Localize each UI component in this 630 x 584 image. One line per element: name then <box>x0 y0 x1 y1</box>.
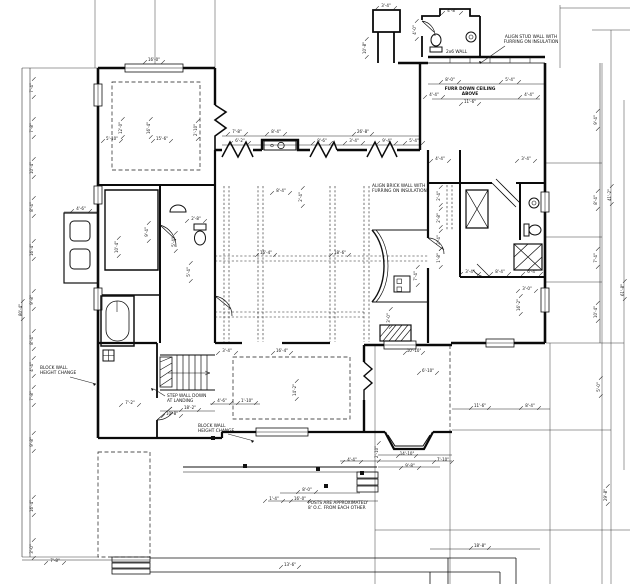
dim-tick <box>174 249 178 253</box>
dimension-label: 4'-8" <box>447 8 457 13</box>
dimension-label: 2'-10" <box>193 124 198 136</box>
dimension-label: 7'-2" <box>125 400 135 405</box>
dimension-label: 10'-4" <box>29 162 34 174</box>
dim-tick <box>596 207 600 211</box>
dimension-label: 11'-6" <box>464 99 476 104</box>
dimension-label: 9'-8" <box>405 463 415 468</box>
dim-tick <box>596 319 600 323</box>
dimension-label: 1'-8" <box>436 253 441 263</box>
dim-tick <box>311 141 315 145</box>
dim-tick <box>270 191 274 195</box>
round-sink-icon <box>529 198 539 208</box>
dim-tick <box>403 141 407 145</box>
dim-tick <box>447 159 451 163</box>
dim-tick <box>457 80 461 84</box>
dimension-label: 9'-4" <box>144 227 149 237</box>
dim-tick <box>459 102 463 106</box>
dim-tick <box>439 185 443 189</box>
cabinet-icon <box>64 213 98 283</box>
toilet-icon <box>524 224 541 236</box>
slab-dashed <box>98 452 150 557</box>
deck-and-walks <box>112 467 516 584</box>
tray-ceiling-dashed <box>112 82 200 170</box>
dim-tick <box>295 397 299 401</box>
dimension-label: 9'-4" <box>382 138 392 143</box>
dimension-label: 2'-4" <box>436 191 441 201</box>
dim-tick <box>283 132 287 136</box>
dim-tick <box>32 135 36 139</box>
dimension-label: 80'-4" <box>18 304 23 316</box>
dimension-label: 18'-6" <box>334 250 346 255</box>
dimension-label: 4'-4" <box>435 156 445 161</box>
dim-tick <box>596 109 600 113</box>
dim-tick <box>279 565 283 569</box>
dim-tick <box>179 414 183 418</box>
dim-tick <box>189 279 193 283</box>
dim-tick <box>226 132 230 136</box>
dim-tick <box>623 279 627 283</box>
dimension-label: 41'-2" <box>607 189 612 201</box>
dim-tick <box>32 77 36 81</box>
align-brick-wall-note: FURRING ON INSULATION <box>372 188 427 194</box>
walls <box>98 9 545 449</box>
dimension-label: 3'-0" <box>29 544 34 554</box>
dimension-label: 5'-4" <box>409 138 419 143</box>
dim-tick <box>32 385 36 389</box>
dim-tick <box>263 499 267 503</box>
dim-tick <box>121 117 125 121</box>
dim-tick <box>21 299 25 303</box>
dimension-label: 4'-6" <box>76 206 86 211</box>
dimension-label: 3'-0" <box>386 313 391 323</box>
dimension-label: 18'-8" <box>474 543 486 548</box>
dim-tick <box>32 196 36 200</box>
dimension-label: 5'-4" <box>505 77 515 82</box>
dim-tick <box>489 272 493 276</box>
block-wall-height-note-1-leader <box>70 377 96 384</box>
dimension-label: 5'-4" <box>186 267 191 277</box>
dim-tick <box>244 132 248 136</box>
pedestal-sink-icon <box>170 205 186 212</box>
dim-tick <box>533 159 537 163</box>
dim-tick <box>596 189 600 193</box>
dim-tick <box>196 137 200 141</box>
dim-tick <box>62 561 66 565</box>
floor-plan-sheet: 7'-4"7'-8"10'-4"8'-4"16'-4"9'-8"8'-4"4'-… <box>0 0 630 584</box>
align-stud-wall-note-leader <box>482 46 505 62</box>
dim-tick <box>32 403 36 407</box>
dimension-label: 1'-4" <box>269 496 279 501</box>
dim-tick <box>536 95 540 99</box>
post-markers <box>211 436 364 488</box>
dimension-label: 5'-4" <box>171 237 176 247</box>
dim-tick <box>415 37 419 41</box>
dimension-label: 61'-8" <box>620 284 625 296</box>
dimension-labels: 7'-4"7'-8"10'-4"8'-4"16'-4"9'-8"8'-4"4'-… <box>18 3 627 569</box>
dim-tick <box>439 225 443 229</box>
dim-tick <box>234 351 238 355</box>
dimension-label: 4'-4" <box>29 362 34 372</box>
dimension-label: 16'-4" <box>29 244 34 256</box>
dim-tick <box>441 11 445 15</box>
dim-tick <box>32 175 36 179</box>
extension-lines <box>22 0 630 584</box>
dim-tick <box>119 403 123 407</box>
dimension-label: 8'-0" <box>445 77 455 82</box>
dim-tick <box>415 19 419 23</box>
dimension-label: 2'-4" <box>298 192 303 202</box>
dimension-label: 3'-4" <box>349 138 359 143</box>
dimension-label: 11'-6" <box>474 403 486 408</box>
align-stud-wall-note-arrowhead <box>479 61 482 64</box>
dimension-label: 3'-4" <box>222 348 232 353</box>
dim-tick <box>101 139 105 143</box>
dim-tick <box>519 312 523 316</box>
post-marker <box>360 471 364 475</box>
dimension-label: 26'-8" <box>357 129 369 134</box>
post-marker <box>211 436 215 440</box>
dim-tick <box>416 265 420 269</box>
dimension-label: 7'-10" <box>437 457 449 462</box>
dim-tick <box>32 239 36 243</box>
windows <box>94 57 549 436</box>
dim-tick <box>417 371 421 375</box>
dimension-label: 2'-4" <box>436 235 441 245</box>
dim-tick <box>596 247 600 251</box>
dimension-label: 6'-2" <box>235 138 245 143</box>
dim-tick <box>507 272 511 276</box>
dimension-label: 16'-0" <box>148 57 160 62</box>
dim-tick <box>161 60 165 64</box>
dim-tick <box>32 329 36 333</box>
dim-tick <box>32 449 36 453</box>
dim-tick <box>121 135 125 139</box>
shower-icon <box>514 244 542 270</box>
post-marker <box>324 484 328 488</box>
dimension-label: 4'-4" <box>347 457 357 462</box>
cooktop-icon <box>264 141 296 150</box>
dim-tick <box>271 351 275 355</box>
align-stud-wall-note: FURRING ON INSULATION <box>504 39 559 45</box>
toilet-icon <box>430 34 442 52</box>
dim-tick <box>189 261 193 265</box>
toilet-icon <box>194 224 206 245</box>
dim-tick <box>370 132 374 136</box>
stairs <box>160 355 210 390</box>
dim-tick <box>185 219 189 223</box>
dim-tick <box>32 347 36 351</box>
dimension-label: 16'-4" <box>260 250 272 255</box>
dim-tick <box>439 203 443 207</box>
dimension-label: 1'-10" <box>241 398 253 403</box>
dimension-label: 2'-8" <box>191 216 201 221</box>
dimension-label: 6'-10" <box>422 368 434 373</box>
dimension-label: 9'-8" <box>29 295 34 305</box>
dimension-label: 3'-4" <box>465 269 475 274</box>
dim-tick <box>606 502 610 506</box>
dim-tick <box>459 11 463 15</box>
dim-tick <box>297 565 301 569</box>
step-wall-note-arrowhead <box>151 388 154 391</box>
dimension-label: 7'-4" <box>593 253 598 263</box>
dimension-label: 10'-4" <box>114 241 119 253</box>
dim-tick <box>32 289 36 293</box>
dashed-lines <box>98 82 452 557</box>
dim-tick <box>119 139 123 143</box>
dimension-label: 7'-4" <box>413 271 418 281</box>
dim-tick <box>32 307 36 311</box>
dim-tick <box>361 141 365 145</box>
dim-tick <box>439 265 443 269</box>
dimension-label: 16'-2" <box>516 299 521 311</box>
dimension-label: 10'-8" <box>166 411 178 416</box>
dimension-label: 5'-10" <box>106 136 118 141</box>
dim-tick <box>365 37 369 41</box>
dim-tick <box>32 374 36 378</box>
step-wall-note: AT LANDING <box>167 398 193 404</box>
dimension-label: 16'-4" <box>276 348 288 353</box>
dimension-label: 29'-8" <box>603 489 608 501</box>
dim-tick <box>394 141 398 145</box>
dim-tick <box>21 317 25 321</box>
dim-tick <box>32 214 36 218</box>
dimension-label: 14'-2" <box>292 384 297 396</box>
dimension-label: 6'-4" <box>527 269 537 274</box>
dim-tick <box>169 139 173 143</box>
dim-tick <box>421 351 425 355</box>
dim-tick <box>44 561 48 565</box>
dim-tick <box>196 119 200 123</box>
dimension-label: 4'-4" <box>429 92 439 97</box>
bathtub-icon <box>101 296 134 346</box>
dimension-label: 9'-8" <box>29 437 34 447</box>
dim-tick <box>623 297 627 301</box>
dim-tick <box>352 132 356 136</box>
block-wall-height-note-1: HEIGHT CHANGE <box>40 370 76 376</box>
dim-tick <box>301 204 305 208</box>
dim-tick <box>416 283 420 287</box>
dimension-label: 10'-4" <box>593 306 598 318</box>
dimension-label: 7'-8" <box>232 129 242 134</box>
dimension-label: 12'-0" <box>118 122 123 134</box>
dim-tick <box>610 202 614 206</box>
block-wall-height-note-2: HEIGHT CHANGE <box>198 428 234 434</box>
dim-tick <box>117 236 121 240</box>
dimension-label: 8'-4" <box>29 335 34 345</box>
dim-tick <box>534 289 538 293</box>
dimension-label: 13'-6" <box>284 562 296 567</box>
dim-tick <box>343 141 347 145</box>
dimension-label: 8'-4" <box>593 195 598 205</box>
dim-tick <box>421 141 425 145</box>
dim-tick <box>377 441 381 445</box>
dim-tick <box>596 301 600 305</box>
dimension-label: 7'-8" <box>29 391 34 401</box>
dim-tick <box>515 159 519 163</box>
dimension-label: 14'-10" <box>400 451 415 456</box>
dim-tick <box>499 80 503 84</box>
dim-tick <box>289 351 293 355</box>
block-wall-height-note-2-leader <box>228 434 254 441</box>
dimension-label: 16'-4" <box>29 500 34 512</box>
dim-tick <box>247 141 251 145</box>
dim-tick <box>439 229 443 233</box>
dimension-label: 2'-8" <box>436 213 441 223</box>
dimension-label: 8'-0" <box>302 487 312 492</box>
dim-tick <box>519 294 523 298</box>
dim-tick <box>137 403 141 407</box>
dim-tick <box>265 132 269 136</box>
dim-tick <box>517 80 521 84</box>
dimension-label: 10'-10" <box>407 348 422 353</box>
dimension-label: 8'-4" <box>276 188 286 193</box>
dim-tick <box>216 351 220 355</box>
dim-tick <box>32 117 36 121</box>
dim-tick <box>596 265 600 269</box>
post-marker <box>243 464 247 468</box>
dim-tick <box>423 95 427 99</box>
dim-tick <box>147 221 151 225</box>
floor-plan-canvas: 7'-4"7'-8"10'-4"8'-4"16'-4"9'-8"8'-4"4'-… <box>0 0 630 584</box>
dimension-label: 2'-10" <box>374 446 379 458</box>
dim-tick <box>288 191 292 195</box>
dim-tick <box>477 102 481 106</box>
dim-tick <box>610 184 614 188</box>
dim-tick <box>143 60 147 64</box>
dim-tick <box>441 95 445 99</box>
dim-tick <box>301 186 305 190</box>
dim-tick <box>376 141 380 145</box>
dimension-label: 7'-4" <box>29 83 34 93</box>
posts-note: 8' O.C. FROM EACH OTHER <box>308 505 366 511</box>
dim-tick <box>32 513 36 517</box>
dim-tick <box>295 379 299 383</box>
dim-tick <box>149 135 153 139</box>
dim-tick <box>32 157 36 161</box>
dim-tick <box>596 127 600 131</box>
dim-tick <box>516 289 520 293</box>
dimension-label: 8'-4" <box>271 129 281 134</box>
dim-tick <box>439 207 443 211</box>
dimension-label: 7'-8" <box>50 558 60 563</box>
dim-tick <box>32 556 36 560</box>
dim-tick <box>435 371 439 375</box>
dim-tick <box>117 254 121 258</box>
dim-tick <box>403 351 407 355</box>
hearth-hatch <box>380 325 411 341</box>
dimension-label: 3'-4" <box>521 156 531 161</box>
dim-tick <box>174 231 178 235</box>
dim-tick <box>389 307 393 311</box>
dim-tick <box>439 80 443 84</box>
dim-tick <box>32 257 36 261</box>
dimension-label: 18'-2" <box>184 405 196 410</box>
dim-tick <box>203 219 207 223</box>
dim-tick <box>32 538 36 542</box>
dimension-label: 3'-0" <box>522 286 532 291</box>
washer-box-icon <box>103 350 114 361</box>
dimension-label: 5'-0" <box>596 382 601 392</box>
dimension-label: 16'-0" <box>294 496 306 501</box>
dim-tick <box>151 139 155 143</box>
dimension-label: 16'-4" <box>146 122 151 134</box>
dim-tick <box>518 95 522 99</box>
dimension-label: 4'-6" <box>217 398 227 403</box>
dim-tick <box>521 272 525 276</box>
dimension-label: 10'-8" <box>362 42 367 54</box>
dimension-label: 9'-4" <box>593 115 598 125</box>
dimension-label: 7'-8" <box>29 123 34 133</box>
dim-tick <box>32 95 36 99</box>
dimension-label: 8'-6" <box>317 138 327 143</box>
wall-type-note: 2x6 WALL <box>446 49 468 55</box>
dim-tick <box>32 495 36 499</box>
dim-tick <box>32 431 36 435</box>
dimension-label: 8'-4" <box>29 202 34 212</box>
dimension-label: 15'-6" <box>156 136 168 141</box>
post-marker <box>316 467 320 471</box>
dim-tick <box>365 55 369 59</box>
dimension-label: 8'-4" <box>495 269 505 274</box>
dim-tick <box>149 117 153 121</box>
dim-tick <box>606 484 610 488</box>
kitchen-island <box>372 230 428 302</box>
round-sink-icon <box>466 32 476 42</box>
dim-tick <box>429 159 433 163</box>
furr-ceiling-note: ABOVE <box>462 91 478 97</box>
dimension-label: 4'-4" <box>524 92 534 97</box>
dim-tick <box>539 272 543 276</box>
dimension-label: 3'-4" <box>381 3 391 8</box>
dim-tick <box>32 356 36 360</box>
dim-tick <box>147 239 151 243</box>
dimension-label: 4'-0" <box>412 25 417 35</box>
dimension-label: 8'-4" <box>525 403 535 408</box>
